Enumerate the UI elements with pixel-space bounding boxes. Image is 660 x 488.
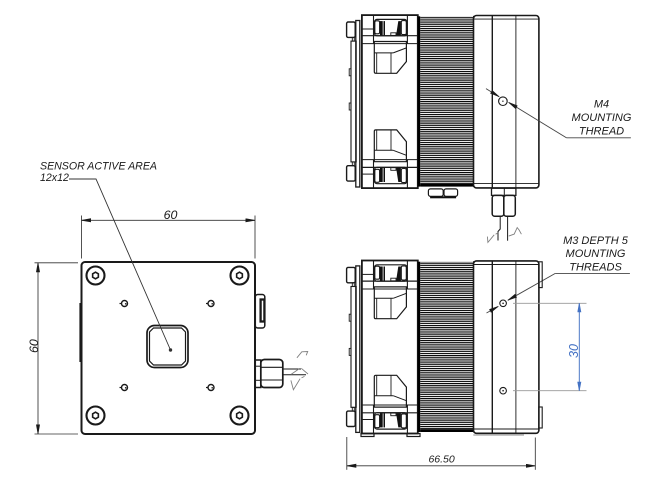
svg-text:66.50: 66.50 [428,453,454,465]
svg-text:THREADS: THREADS [569,261,622,273]
svg-text:M3 DEPTH 5: M3 DEPTH 5 [563,235,629,247]
svg-text:60: 60 [27,339,41,353]
svg-text:30: 30 [567,344,581,358]
svg-text:60: 60 [164,208,178,222]
svg-text:12x12: 12x12 [40,172,69,184]
svg-text:SENSOR ACTIVE AREA: SENSOR ACTIVE AREA [40,160,157,172]
svg-text:M4: M4 [594,98,609,110]
svg-text:THREAD: THREAD [579,126,624,138]
svg-text:MOUNTING: MOUNTING [572,112,632,124]
svg-text:MOUNTING: MOUNTING [566,248,626,260]
